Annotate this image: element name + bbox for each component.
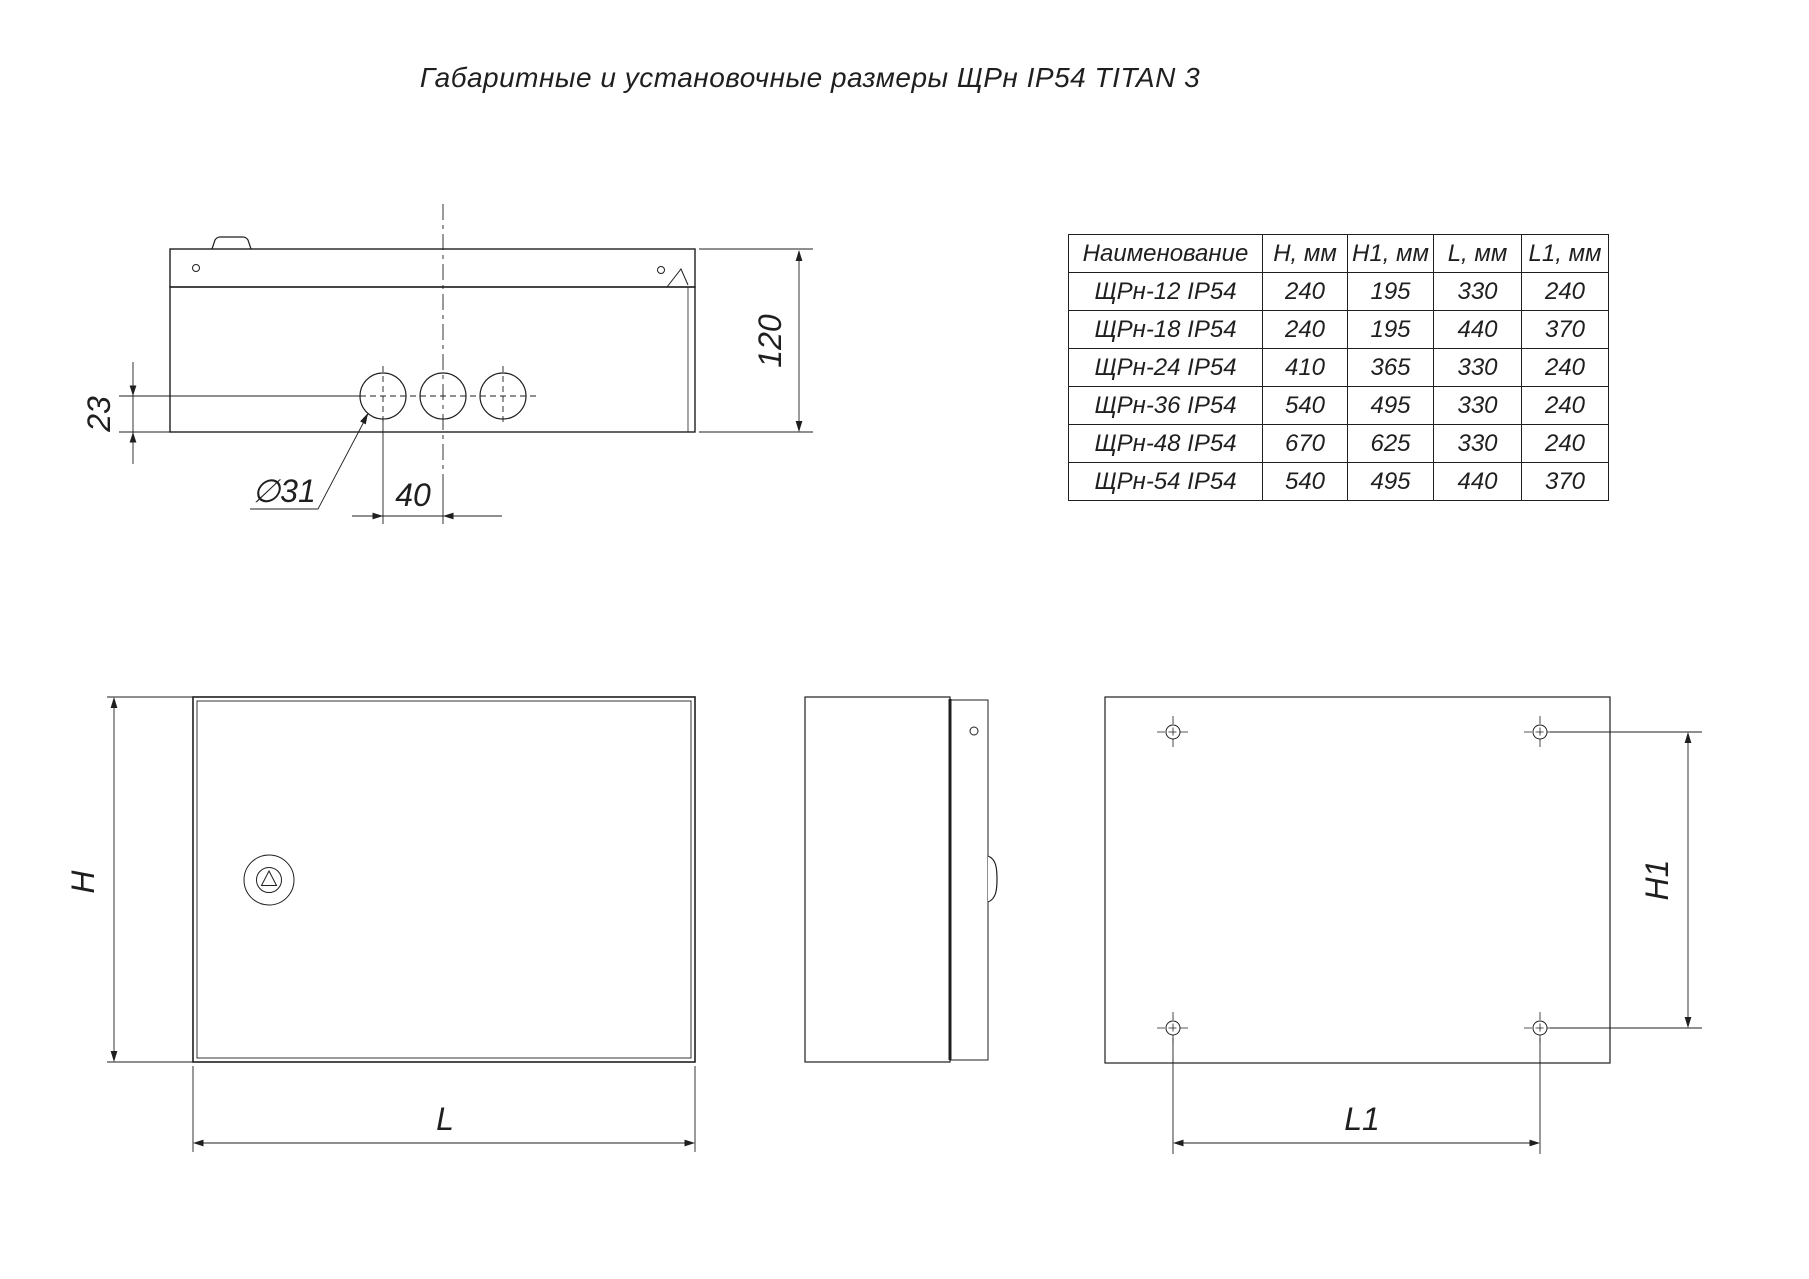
table-row: ЩРн-12 IP54 240 195 330 240 <box>1069 273 1609 311</box>
side-lock-hole <box>970 727 978 735</box>
table-cell: 495 <box>1348 463 1434 501</box>
dimension-depth: 120 <box>699 249 813 432</box>
top-view: 23 120 ∅31 <box>81 204 813 524</box>
table-cell: ЩРн-12 IP54 <box>1069 273 1263 311</box>
arrowhead <box>1173 1140 1184 1147</box>
arrowhead <box>1530 1140 1541 1147</box>
table-cell: 370 <box>1522 311 1609 349</box>
table-cell: 625 <box>1348 425 1434 463</box>
technical-drawing: 23 120 ∅31 <box>0 0 1809 1279</box>
arrowhead <box>373 513 384 520</box>
dimension-mount-height: H1 <box>1550 732 1702 1028</box>
size-table: Наименование H, мм H1, мм L, мм L1, мм Щ… <box>1068 234 1609 501</box>
dimension-mount-width: L1 <box>1173 1038 1540 1154</box>
table-cell: 670 <box>1263 425 1348 463</box>
arrowhead <box>360 413 368 424</box>
table-header-cell: L1, мм <box>1522 235 1609 273</box>
arrowhead <box>796 421 803 432</box>
arrowhead <box>193 1140 204 1147</box>
lid-outline <box>170 249 695 287</box>
mounting-hole-top-left <box>1157 716 1189 748</box>
table-cell: ЩРн-24 IP54 <box>1069 349 1263 387</box>
table-cell: 440 <box>1434 463 1522 501</box>
table-header-cell: L, мм <box>1434 235 1522 273</box>
dim-depth-label: 120 <box>752 314 788 368</box>
table-row: ЩРн-18 IP54 240 195 440 370 <box>1069 311 1609 349</box>
table-cell: 240 <box>1522 387 1609 425</box>
table-cell: 195 <box>1348 273 1434 311</box>
lock-outer-circle <box>244 855 294 905</box>
table-header-cell: Наименование <box>1069 235 1263 273</box>
arrowhead <box>443 513 454 520</box>
side-handle <box>988 856 997 902</box>
rear-outline <box>1105 697 1610 1063</box>
table-cell: 330 <box>1434 387 1522 425</box>
table-cell: 240 <box>1522 349 1609 387</box>
table-cell: 330 <box>1434 273 1522 311</box>
side-door-outline <box>950 700 988 1060</box>
rear-view: H1 L1 <box>1105 697 1702 1154</box>
table-cell: 240 <box>1263 273 1348 311</box>
arrowhead <box>1685 1017 1692 1028</box>
table-cell: ЩРн-18 IP54 <box>1069 311 1263 349</box>
dimension-height: H <box>65 697 195 1062</box>
arrowhead <box>111 1051 118 1062</box>
table-cell: 240 <box>1522 273 1609 311</box>
table-cell: ЩРн-54 IP54 <box>1069 463 1263 501</box>
arrowhead <box>130 386 137 397</box>
arrowhead <box>111 697 118 708</box>
dimension-hole-offset: 23 <box>81 362 360 464</box>
table-cell: 440 <box>1434 311 1522 349</box>
table-cell: 495 <box>1348 387 1434 425</box>
table-header-cell: H1, мм <box>1348 235 1434 273</box>
table-cell: 240 <box>1522 425 1609 463</box>
table-cell: ЩРн-36 IP54 <box>1069 387 1263 425</box>
table-cell: 195 <box>1348 311 1434 349</box>
table-cell: 365 <box>1348 349 1434 387</box>
dim-width-label: L <box>436 1101 454 1137</box>
front-outline <box>193 697 695 1062</box>
table-cell: 330 <box>1434 425 1522 463</box>
dim-hole-spacing-label: 40 <box>395 477 431 513</box>
table-cell: 540 <box>1263 387 1348 425</box>
body-outline <box>170 287 695 432</box>
table-cell: ЩРн-48 IP54 <box>1069 425 1263 463</box>
dim-mount-width-label: L1 <box>1344 1101 1380 1137</box>
arrowhead <box>130 432 137 443</box>
dim-height-label: H <box>65 870 101 894</box>
size-table-header-row: Наименование H, мм H1, мм L, мм L1, мм <box>1069 235 1609 273</box>
table-cell: 330 <box>1434 349 1522 387</box>
arrowhead <box>796 250 803 261</box>
lock-triangle <box>262 871 277 886</box>
lid-notch <box>667 269 688 287</box>
side-view <box>805 697 997 1062</box>
callout-hole-diameter: ∅31 <box>250 413 368 509</box>
door-outline <box>197 701 691 1058</box>
table-cell: 410 <box>1263 349 1348 387</box>
lid-screw-left <box>193 265 200 272</box>
dim-hole-offset-label: 23 <box>81 396 117 433</box>
arrowhead <box>1685 732 1692 743</box>
dimension-width: L <box>193 1066 695 1152</box>
table-cell: 240 <box>1263 311 1348 349</box>
dim-mount-height-label: H1 <box>1639 860 1675 901</box>
table-row: ЩРн-24 IP54 410 365 330 240 <box>1069 349 1609 387</box>
lid-screw-right <box>658 267 665 274</box>
table-row: ЩРн-36 IP54 540 495 330 240 <box>1069 387 1609 425</box>
dimension-hole-spacing: 40 <box>352 420 502 524</box>
front-view: H L <box>65 697 695 1152</box>
table-cell: 540 <box>1263 463 1348 501</box>
drawing-sheet: Габаритные и установочные размеры ЩРн IP… <box>0 0 1809 1279</box>
table-header-cell: H, мм <box>1263 235 1348 273</box>
dim-hole-diameter-label: ∅31 <box>252 473 315 509</box>
table-row: ЩРн-48 IP54 670 625 330 240 <box>1069 425 1609 463</box>
side-body-outline <box>805 697 950 1062</box>
lid-clip <box>212 237 251 249</box>
table-row: ЩРн-54 IP54 540 495 440 370 <box>1069 463 1609 501</box>
arrowhead <box>685 1140 696 1147</box>
table-cell: 370 <box>1522 463 1609 501</box>
